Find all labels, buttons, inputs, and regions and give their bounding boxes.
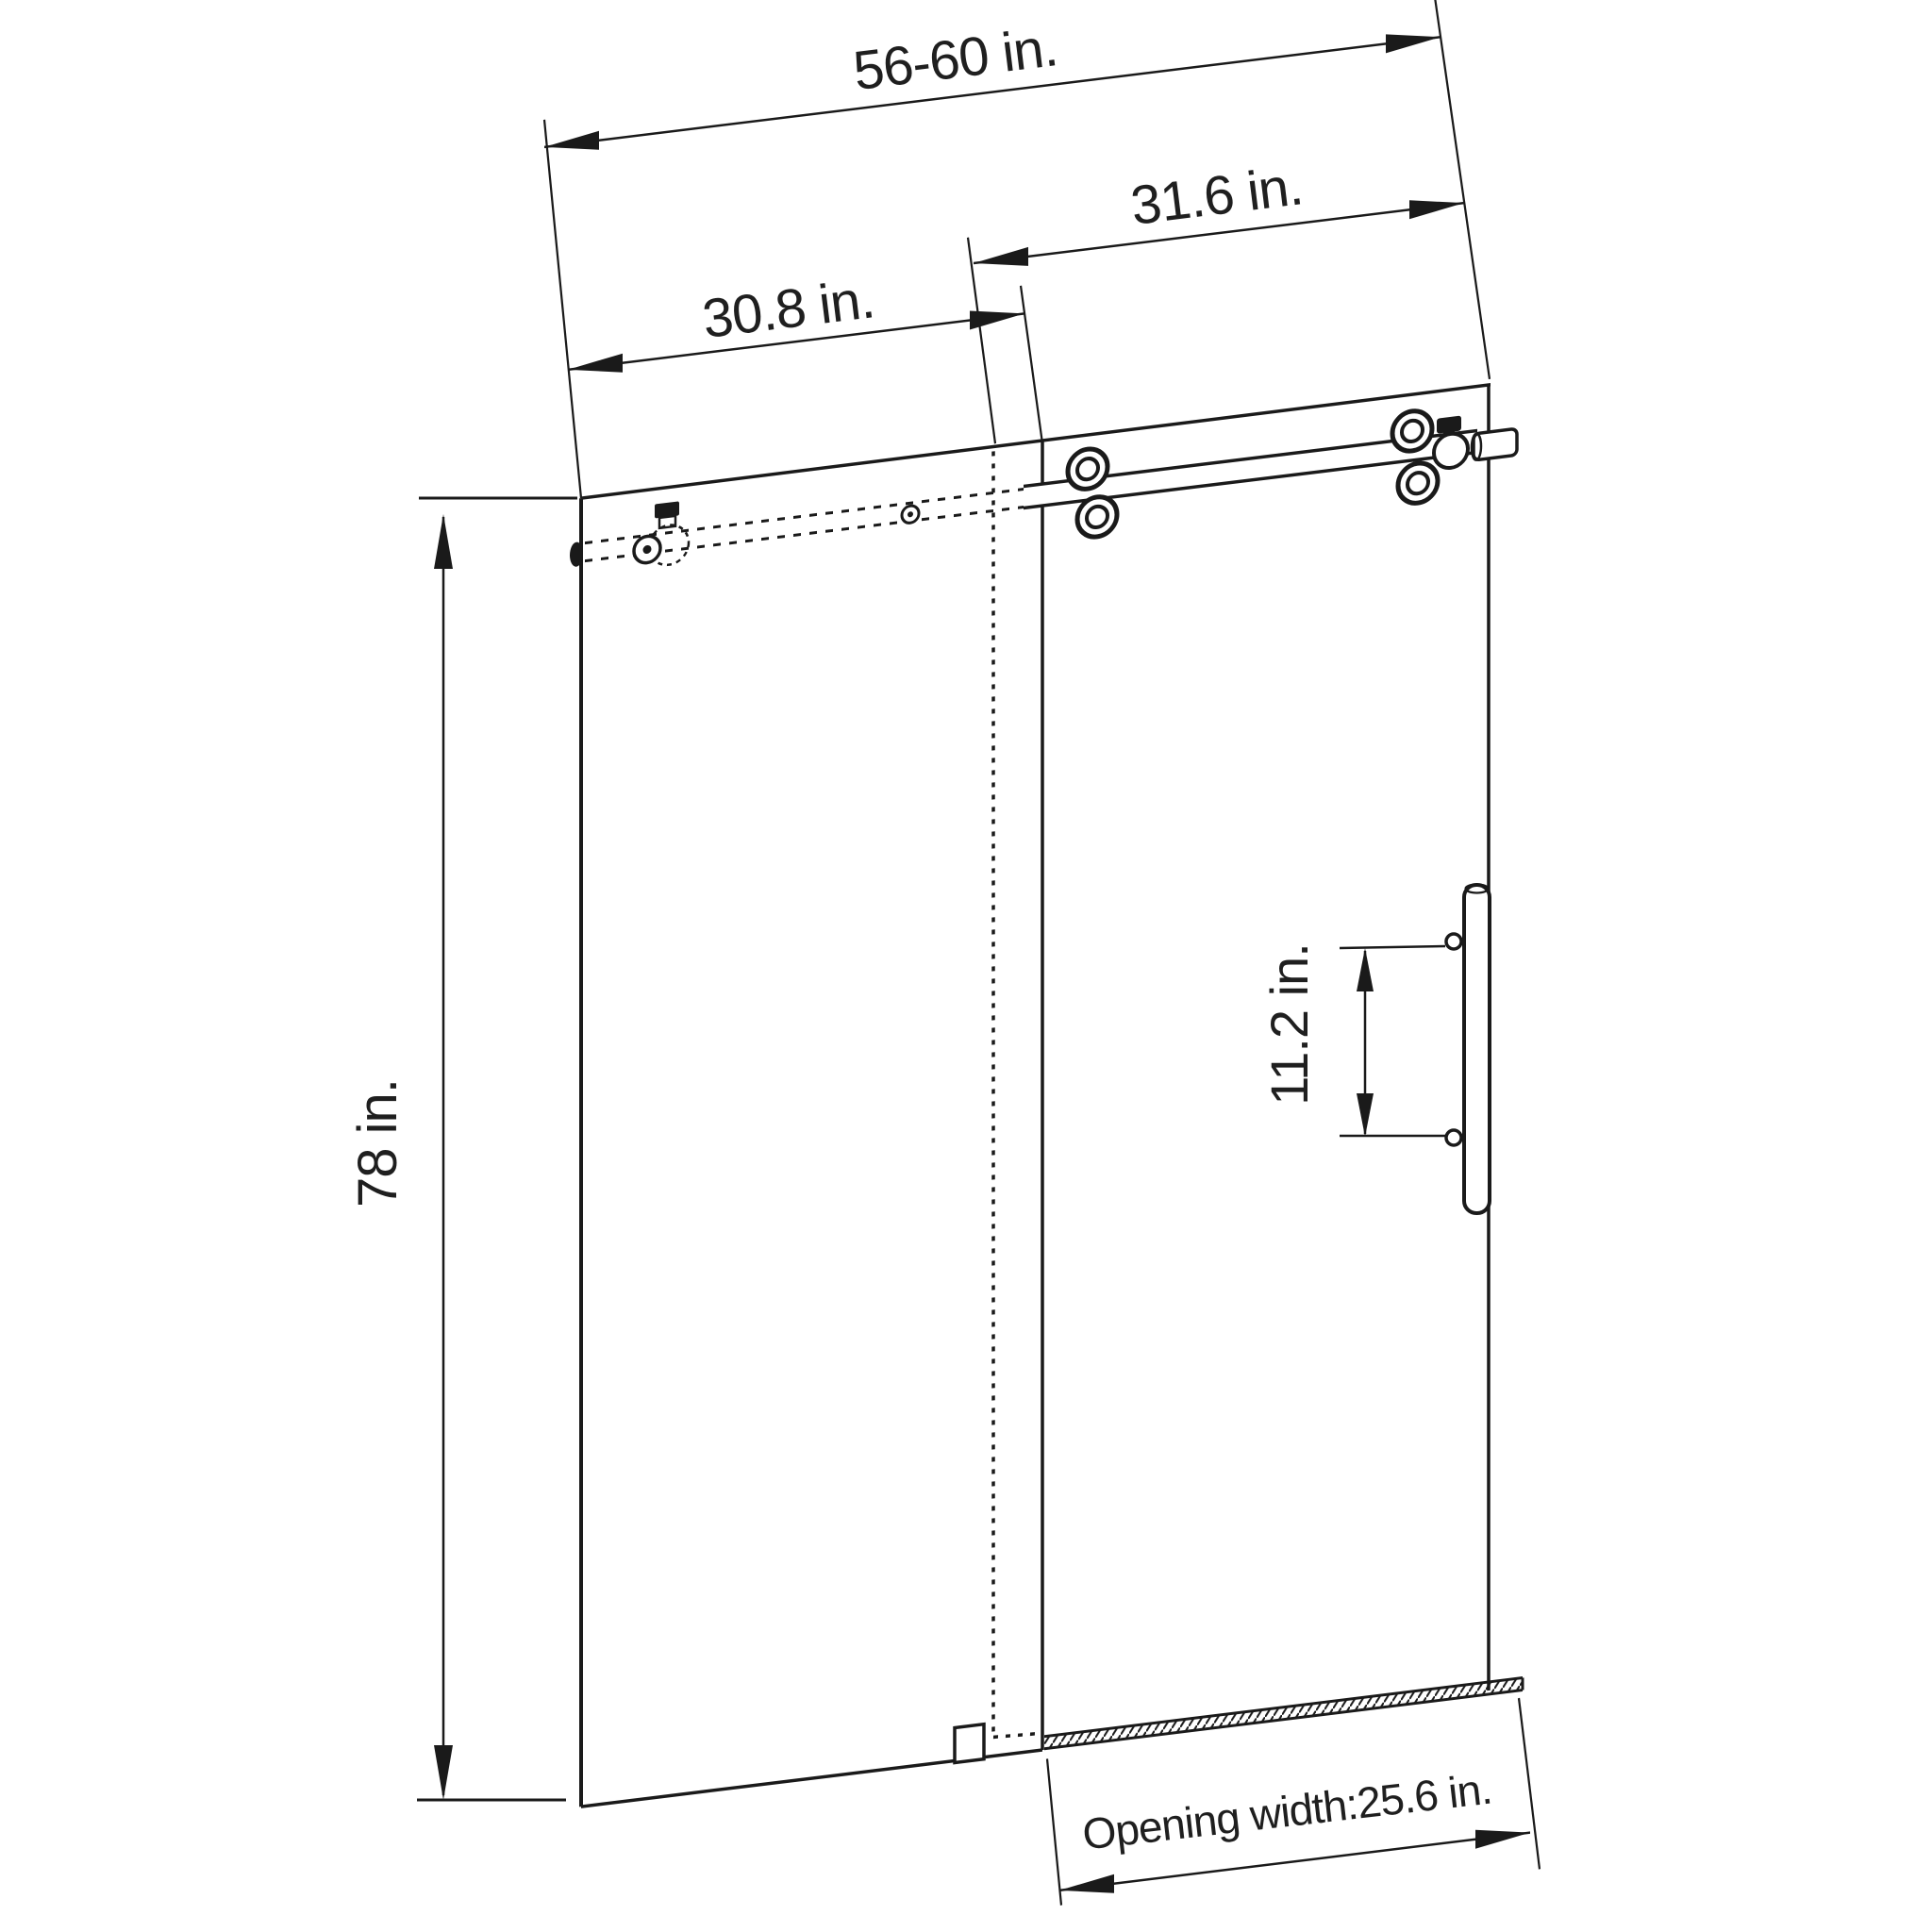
handle-mount-bottom	[1446, 1130, 1461, 1145]
handle-spacing-label: 11.2 in.	[1259, 943, 1319, 1106]
background	[0, 0, 1932, 1932]
roller-hub	[1407, 472, 1428, 495]
roller-hub	[1077, 458, 1098, 481]
roller-hub	[1402, 420, 1423, 443]
handle-bar	[1464, 885, 1490, 1213]
diagram-canvas: 56-60 in. 31.6 in. 30.8 in. 78 in. 11.2 …	[0, 0, 1932, 1932]
floor-guide-block	[955, 1724, 984, 1763]
door-height-label: 78 in.	[347, 1079, 408, 1207]
handle-mount-top	[1446, 934, 1461, 949]
roller-hub	[1087, 506, 1108, 529]
shower-door-dimension-diagram: 56-60 in. 31.6 in. 30.8 in. 78 in. 11.2 …	[0, 0, 1932, 1932]
